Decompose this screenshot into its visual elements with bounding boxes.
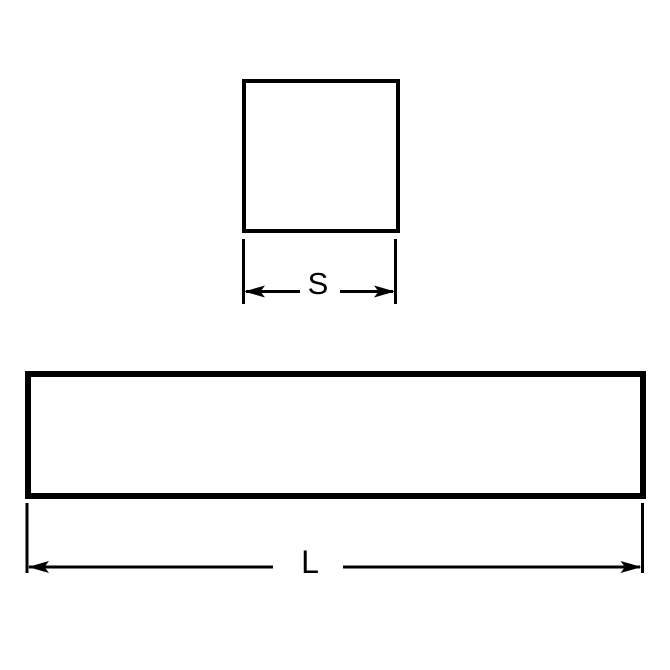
- dimension-graphics: [0, 0, 670, 670]
- l-dimension-label: L: [285, 546, 335, 578]
- diagram-canvas: S L: [0, 0, 670, 670]
- s-dimension-label: S: [293, 268, 343, 300]
